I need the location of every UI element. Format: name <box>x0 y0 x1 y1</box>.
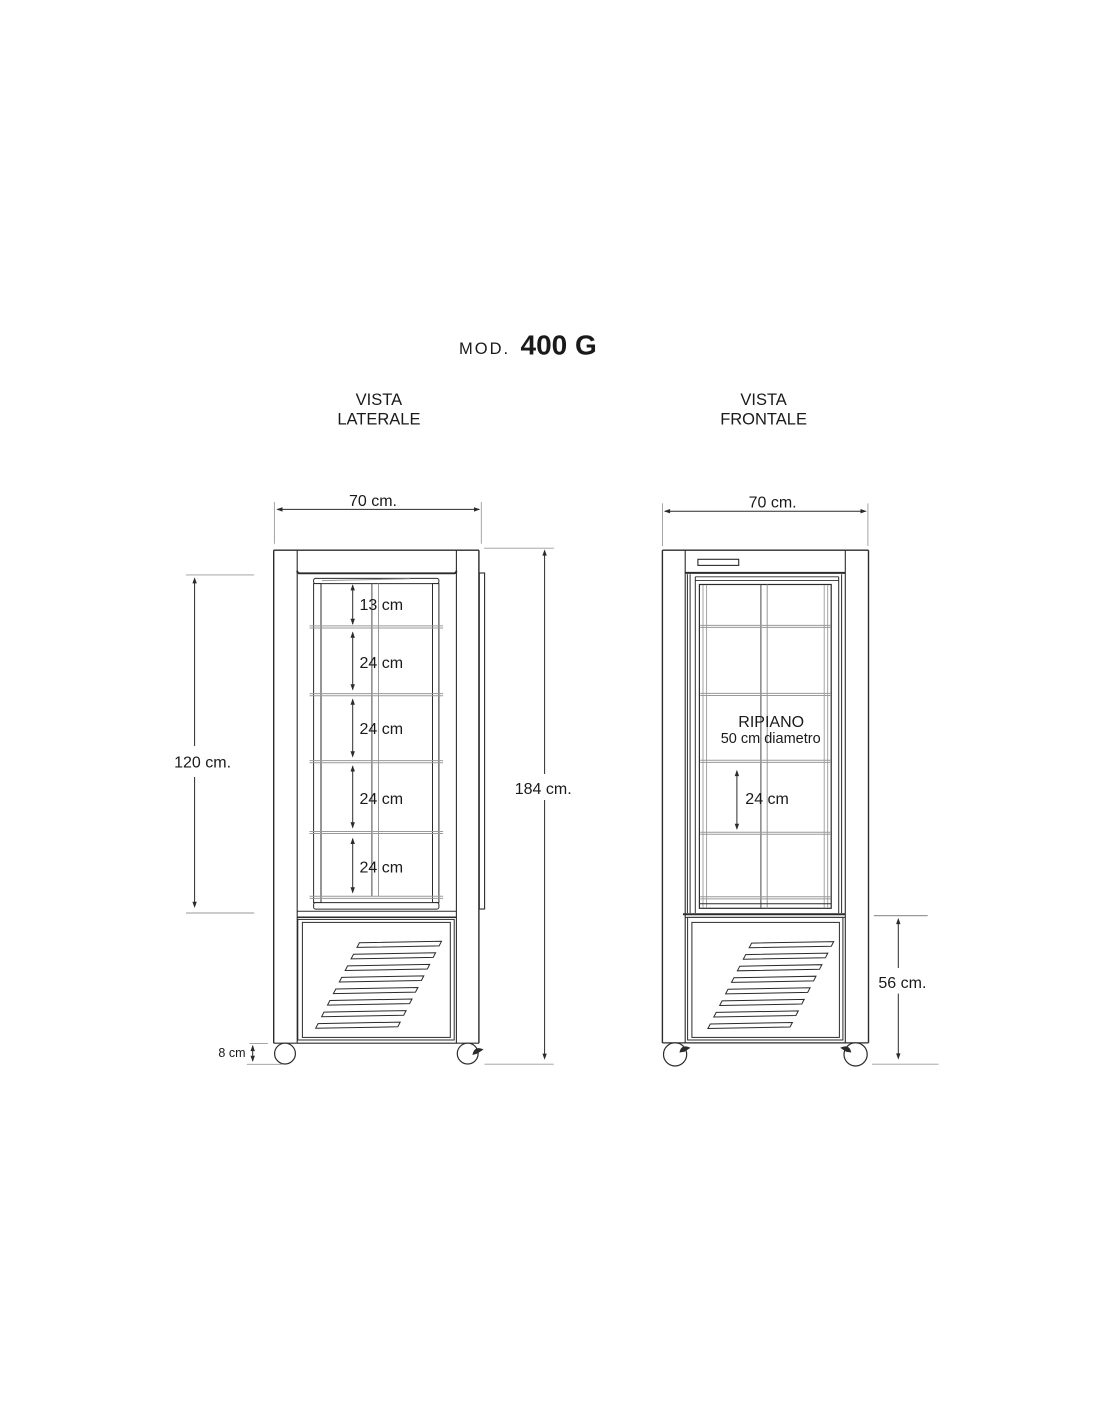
svg-text:24 cm: 24 cm <box>745 791 789 808</box>
svg-text:8 cm: 8 cm <box>218 1046 245 1060</box>
svg-text:13 cm: 13 cm <box>360 597 404 614</box>
svg-text:70 cm.: 70 cm. <box>749 495 797 512</box>
svg-text:24 cm: 24 cm <box>360 721 404 738</box>
svg-text:24 cm: 24 cm <box>360 791 404 808</box>
svg-text:MOD.: MOD. <box>459 340 510 358</box>
svg-text:VISTA: VISTA <box>356 391 402 409</box>
svg-text:70 cm.: 70 cm. <box>349 493 397 510</box>
svg-text:RIPIANO: RIPIANO <box>738 714 804 731</box>
svg-text:120 cm.: 120 cm. <box>174 755 231 772</box>
svg-text:184 cm.: 184 cm. <box>515 781 572 798</box>
svg-text:VISTA: VISTA <box>740 391 786 409</box>
svg-text:24 cm: 24 cm <box>360 655 404 672</box>
svg-text:400 G: 400 G <box>521 330 597 361</box>
svg-text:FRONTALE: FRONTALE <box>720 410 807 428</box>
svg-text:LATERALE: LATERALE <box>337 410 420 428</box>
svg-text:24 cm: 24 cm <box>360 860 404 877</box>
svg-text:56 cm.: 56 cm. <box>878 975 926 992</box>
svg-text:50 cm diametro: 50 cm diametro <box>721 731 821 747</box>
